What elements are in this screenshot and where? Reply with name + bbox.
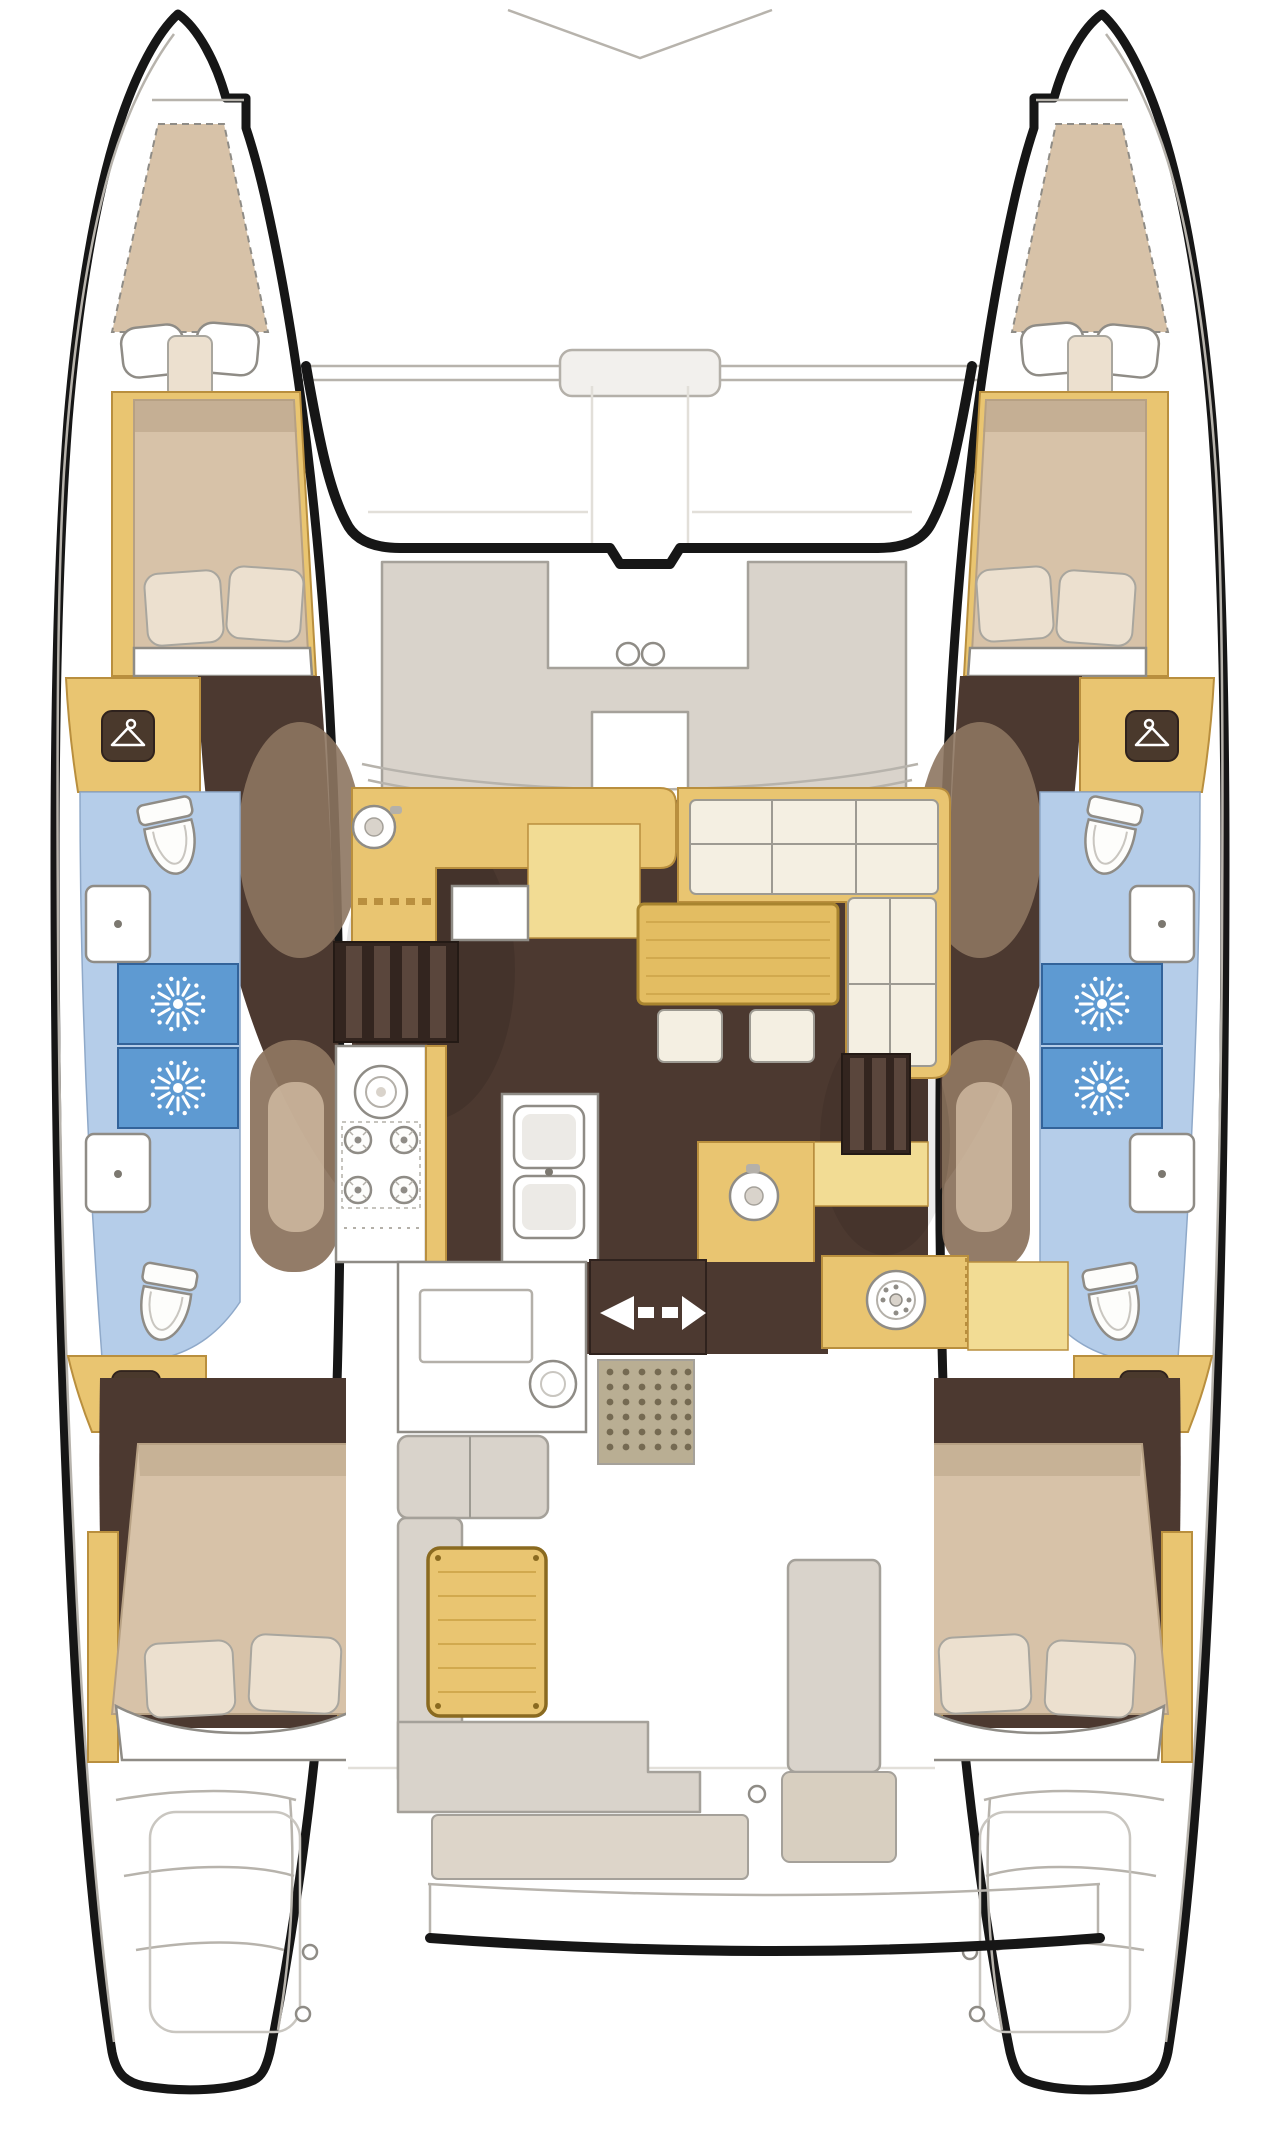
- galley-double-sink: [502, 1094, 598, 1268]
- sliding-door: [590, 1260, 706, 1354]
- burner-icon: [391, 1127, 417, 1153]
- winch-icon: [867, 1271, 925, 1329]
- burner-icon: [391, 1177, 417, 1203]
- dinette: [638, 788, 950, 1078]
- burner-icon: [345, 1127, 371, 1153]
- cockpit-counter: [822, 1256, 1068, 1350]
- oven-icon: [355, 1066, 407, 1118]
- crossbeam-plate: [560, 350, 720, 396]
- stool: [658, 1010, 722, 1062]
- engine-hatch: [432, 1815, 748, 1879]
- deck-hatch-icon: [617, 643, 639, 665]
- port-cockpit-bench: [398, 1436, 548, 1518]
- port-companionway-steps: [334, 942, 458, 1042]
- helm-seat: [782, 1772, 896, 1862]
- catamaran-floor-plan: [0, 0, 1280, 2151]
- starboard-companionway-steps: [842, 1054, 910, 1154]
- chart-table: [528, 824, 640, 938]
- doormat: [598, 1360, 694, 1464]
- helm-module: [788, 1560, 880, 1772]
- cockpit-table: [428, 1548, 546, 1716]
- stove: [336, 1046, 446, 1262]
- deck-cap-icon: [749, 1786, 765, 1802]
- stool: [750, 1010, 814, 1062]
- dinette-table: [638, 904, 838, 1004]
- burner-icon: [345, 1177, 371, 1203]
- deck-hatch-icon: [642, 643, 664, 665]
- cockpit-forward-module: [398, 1262, 586, 1432]
